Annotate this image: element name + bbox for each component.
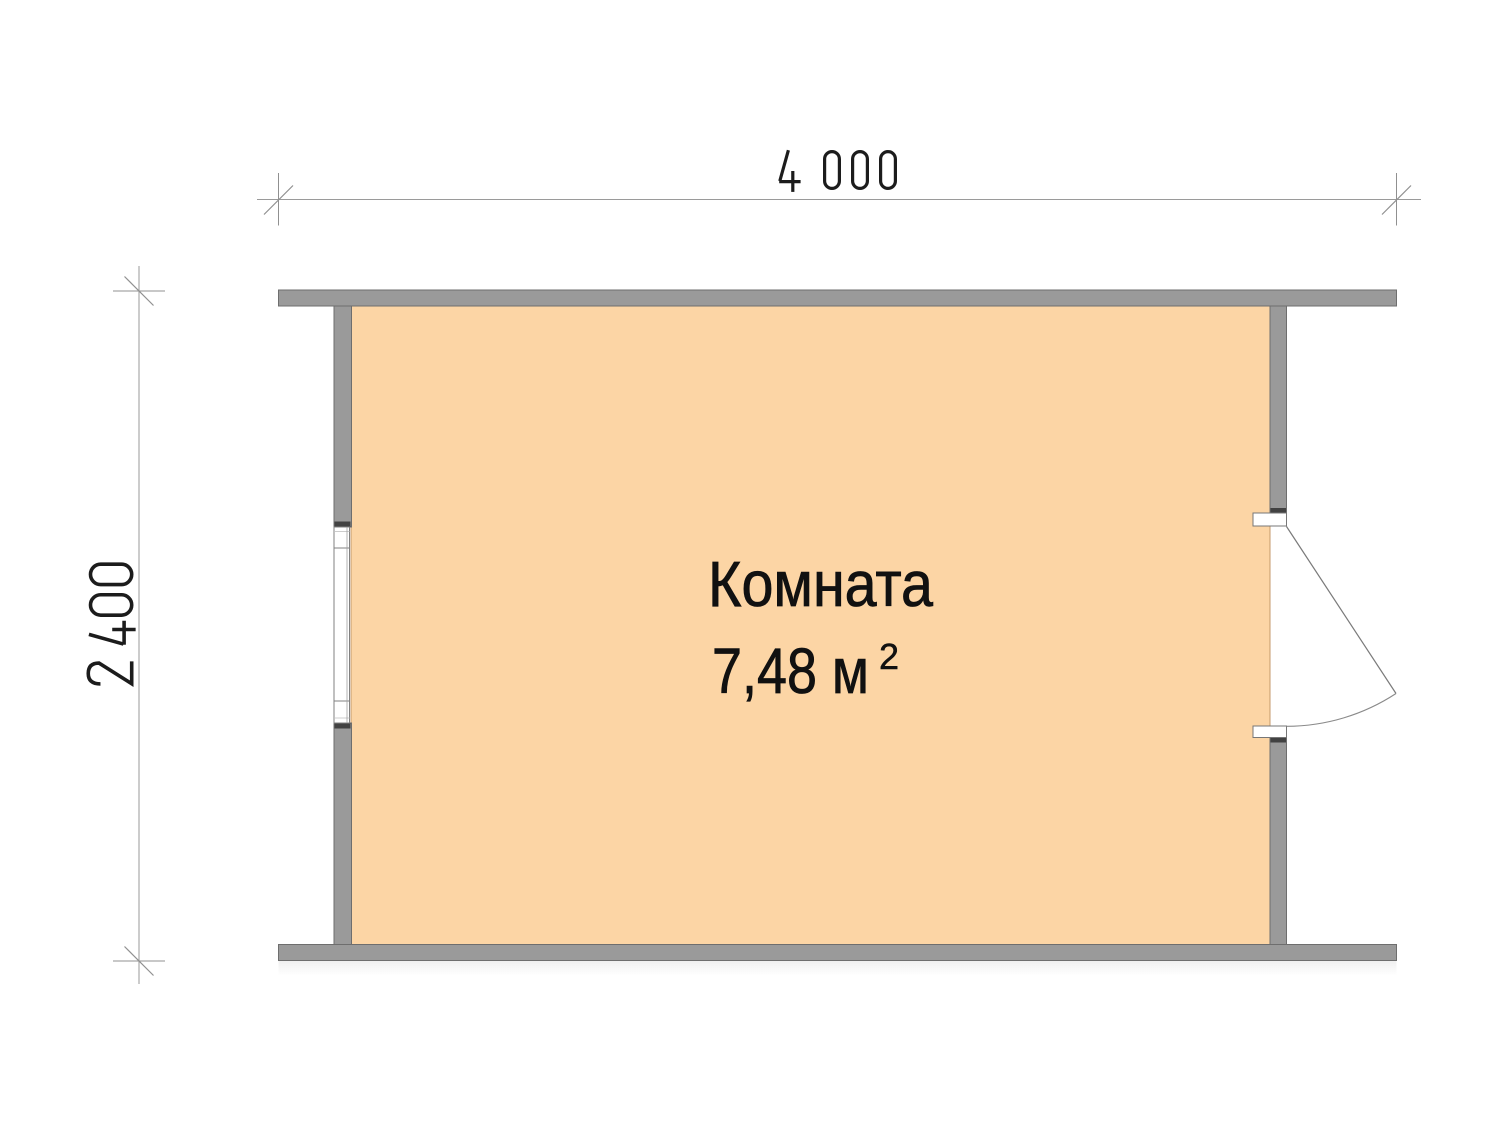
svg-text:Комната: Комната [708, 548, 933, 620]
svg-text:7,48 м: 7,48 м [712, 635, 869, 707]
svg-text:2: 2 [879, 636, 899, 677]
